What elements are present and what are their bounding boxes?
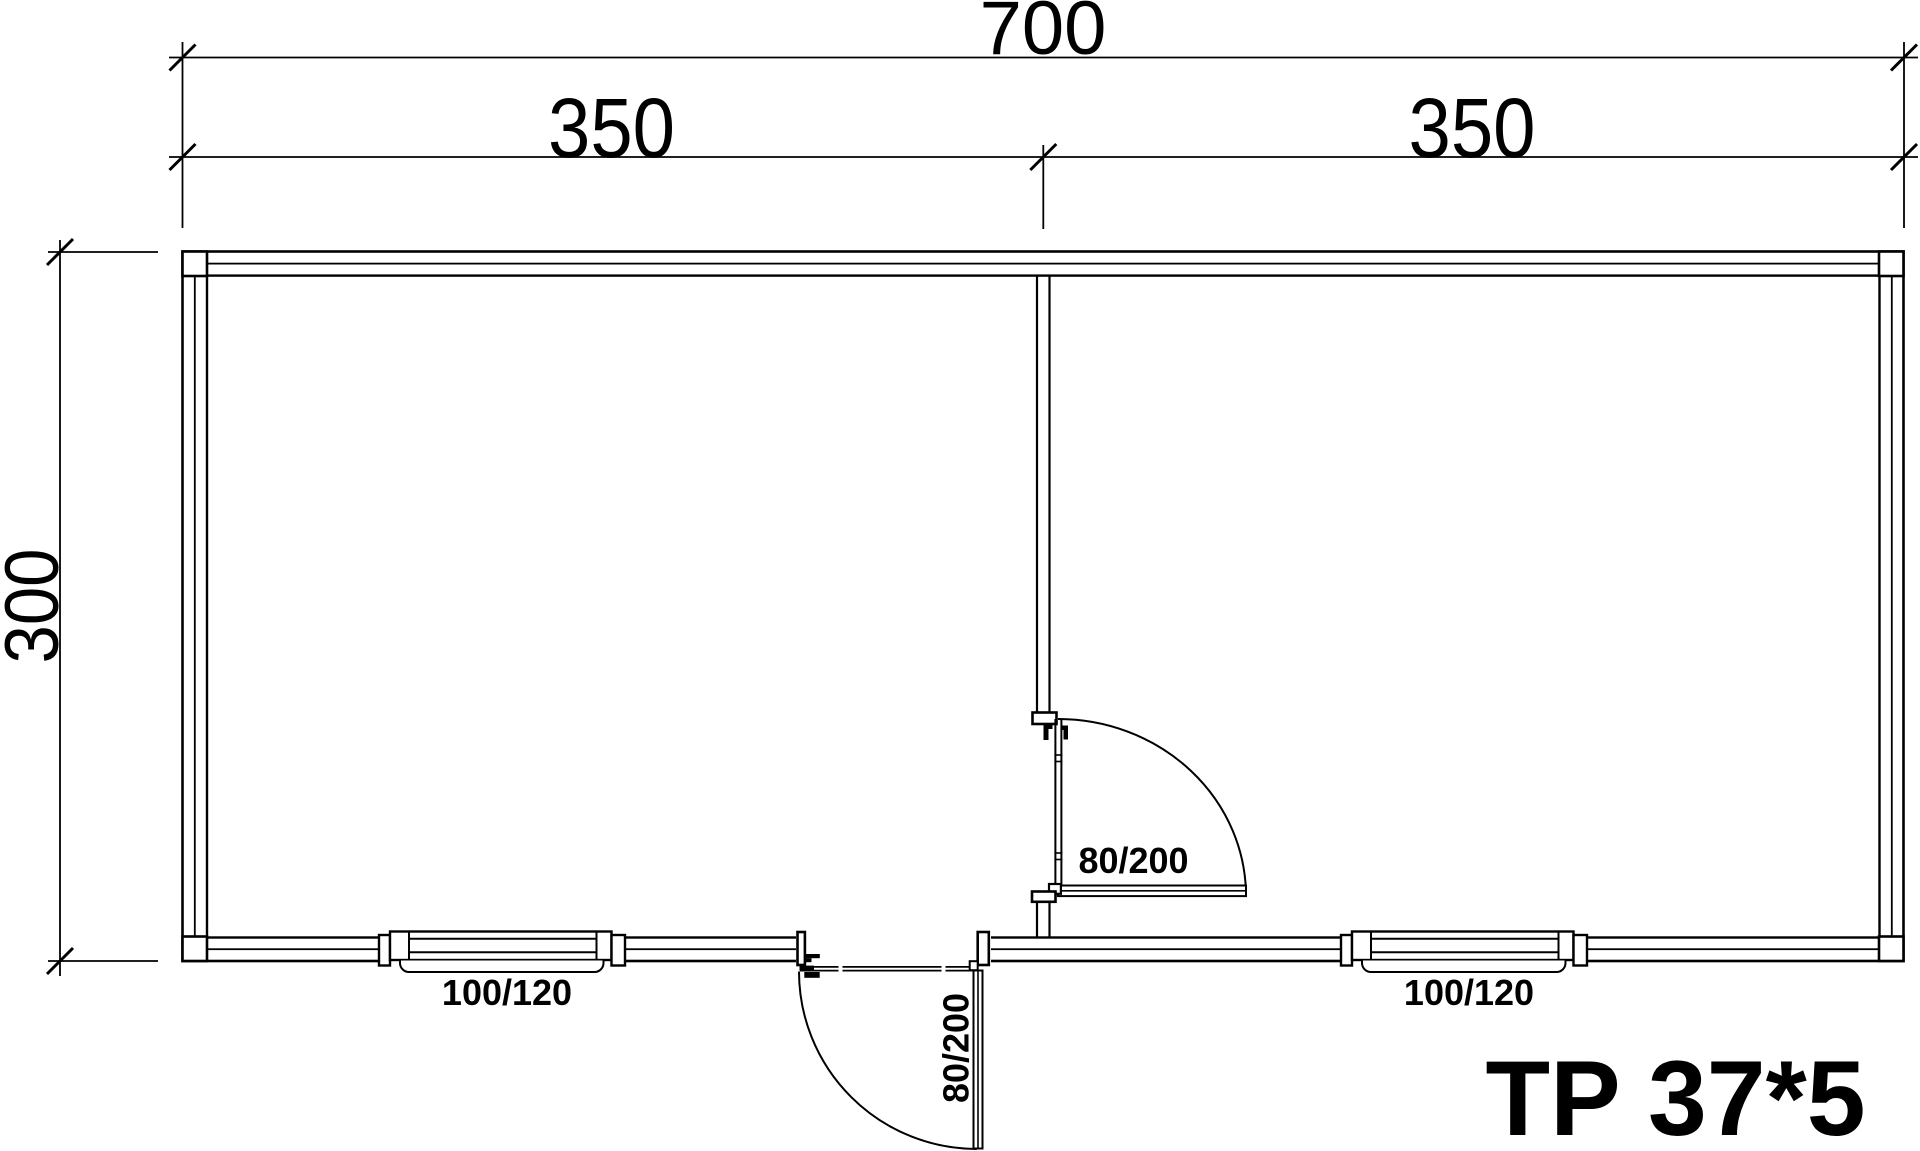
svg-text:100/120: 100/120	[442, 972, 572, 1013]
svg-text:350: 350	[1409, 81, 1536, 175]
svg-text:700: 700	[980, 0, 1107, 71]
svg-text:80/200: 80/200	[1078, 840, 1188, 881]
svg-text:80/200: 80/200	[936, 993, 977, 1103]
svg-text:300: 300	[0, 549, 75, 664]
svg-text:100/120: 100/120	[1404, 972, 1534, 1013]
svg-text:350: 350	[548, 81, 675, 175]
svg-text:TP 37*5: TP 37*5	[1486, 1039, 1866, 1151]
